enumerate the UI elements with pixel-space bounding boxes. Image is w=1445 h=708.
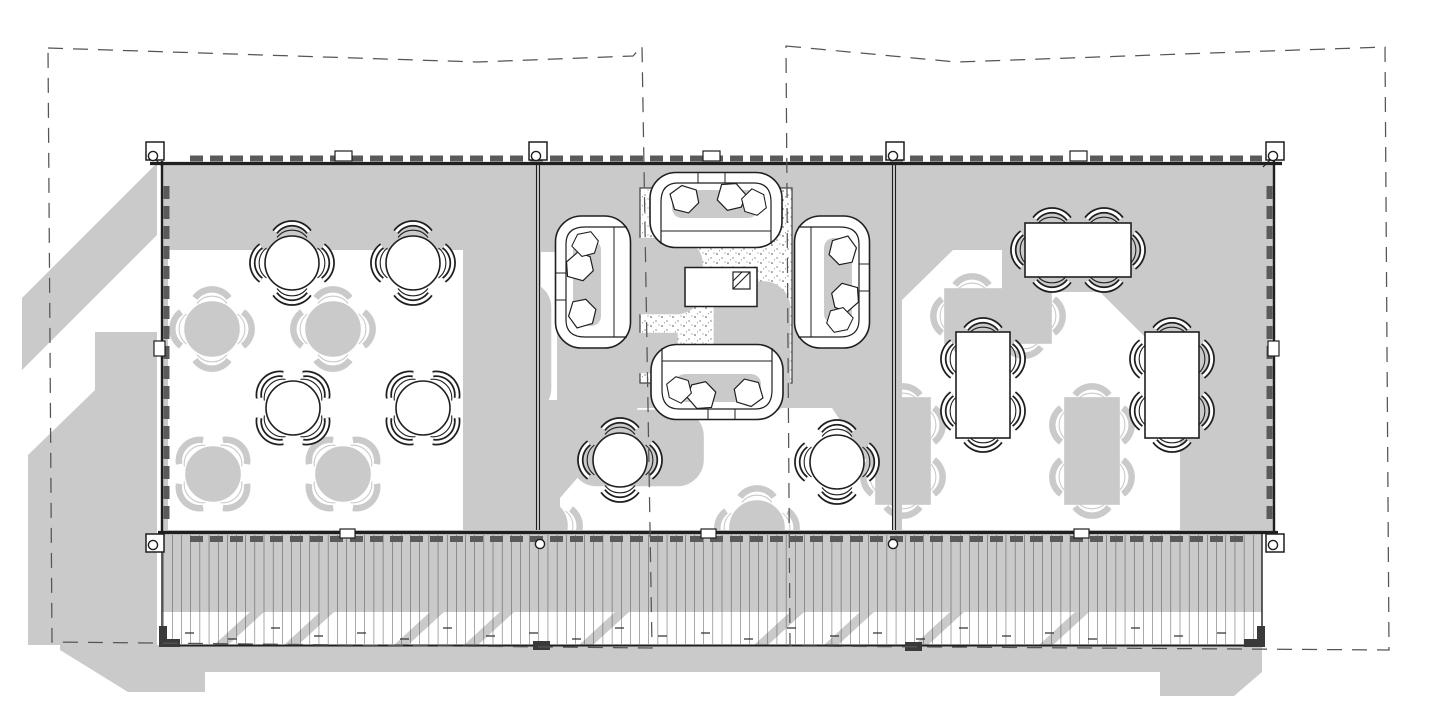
rect-table-6-chairs (1013, 210, 1142, 289)
deck-foot-mid (533, 641, 550, 650)
deck (159, 534, 1265, 651)
coffee-table (685, 268, 757, 307)
deck-boards (163, 535, 1261, 644)
sofa (651, 345, 783, 420)
sofa (556, 216, 631, 348)
sofa (650, 173, 782, 248)
rect-table-6-chairs (943, 320, 1022, 449)
sofa (795, 216, 870, 348)
rect-table-6-chairs (1132, 320, 1211, 449)
floor-plan-drawing (0, 0, 1445, 708)
floor-plan-page (0, 0, 1445, 708)
